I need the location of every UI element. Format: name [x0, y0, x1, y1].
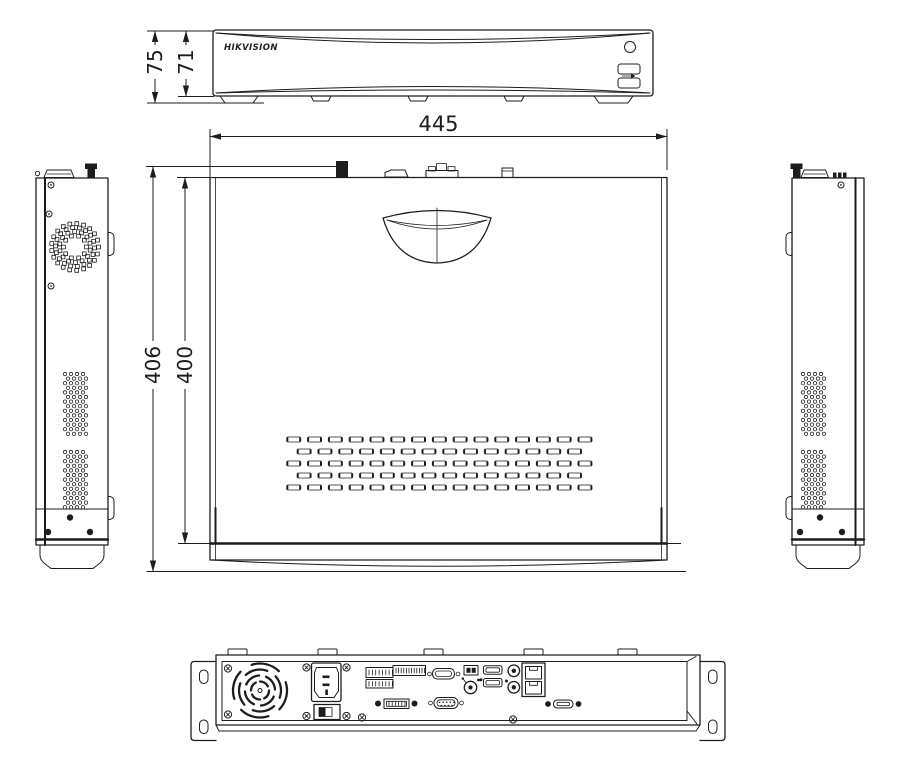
right-side-view: [786, 164, 864, 569]
vent-slot-cap: [310, 450, 312, 454]
db9-pin: [451, 705, 453, 707]
rear-connector-bump: [502, 168, 513, 178]
dimension-406: 406: [139, 341, 165, 389]
panel-rivet: [480, 678, 483, 681]
switch-rocker-on: [319, 708, 326, 717]
ac-pin: [323, 684, 330, 687]
terminal-screw: [576, 701, 582, 707]
vent-slot-cap: [484, 474, 486, 478]
vent-slot-cap: [570, 486, 572, 490]
vent-slot-cap: [507, 462, 509, 466]
vent-slot-cap: [359, 474, 361, 478]
top-view: [210, 161, 667, 566]
vent-slot-cap: [549, 438, 551, 442]
vent-slot-cap: [422, 474, 424, 478]
vent-slot-cap: [546, 450, 548, 454]
vent-slot-cap: [297, 474, 299, 478]
vent-slot-cap: [476, 450, 478, 454]
front-foot: [504, 96, 524, 101]
vent-slot-cap: [382, 462, 384, 466]
dimension-400: 400: [171, 341, 197, 389]
screw-icon: [45, 529, 51, 535]
vent-slot-cap: [403, 462, 405, 466]
vent-slot-cap: [372, 450, 374, 454]
vent-slot-cap: [494, 438, 496, 442]
vent-slot-cap: [424, 486, 426, 490]
vent-slot-cap: [580, 474, 582, 478]
vent-slot-cap: [453, 462, 455, 466]
vent-slot-cap: [466, 462, 468, 466]
vent-slot-cap: [341, 438, 343, 442]
vent-slot-cap: [411, 462, 413, 466]
vent-slot-cap: [474, 462, 476, 466]
vent-slot-cap: [320, 438, 322, 442]
vent-slot-cap: [349, 438, 351, 442]
front-view: HIKVISION: [213, 30, 653, 103]
vent-slot-cap: [528, 462, 530, 466]
vent-slot-cap: [505, 474, 507, 478]
vent-slot-cap: [390, 462, 392, 466]
vent-slot-cap: [330, 450, 332, 454]
vent-slot-cap: [372, 474, 374, 478]
dimension-406-label: 406: [141, 346, 165, 384]
terminal-screw: [412, 701, 418, 707]
vent-slot-cap: [299, 486, 301, 490]
ear-slot: [200, 720, 209, 734]
vent-slot-cap: [286, 462, 288, 466]
vent-slot-cap: [318, 474, 320, 478]
vent-slot-cap: [578, 462, 580, 466]
vent-slot-cap: [320, 462, 322, 466]
vent-slot-cap: [590, 462, 592, 466]
vent-slot-cap: [445, 462, 447, 466]
vent-slot-cap: [320, 486, 322, 490]
vent-slot-cap: [411, 438, 413, 442]
right-side-outline: [792, 178, 864, 545]
top-connector: [35, 171, 39, 175]
vent-slot-cap: [432, 462, 434, 466]
rca-pin: [512, 685, 516, 689]
top-connector: [843, 173, 847, 178]
front-foot-profile: [796, 545, 860, 569]
vent-slot-cap: [390, 486, 392, 490]
front-foot: [311, 96, 331, 101]
vent-slot-cap: [507, 486, 509, 490]
vent-slot-cap: [515, 462, 517, 466]
vent-slot-cap: [434, 474, 436, 478]
vent-slot-cap: [515, 486, 517, 490]
db9-pin: [446, 702, 448, 704]
vent-slot-cap: [463, 474, 465, 478]
bnc-lug: [462, 677, 464, 679]
vent-slot-cap: [536, 486, 538, 490]
vent-slot-cap: [590, 486, 592, 490]
vent-slot-cap: [505, 450, 507, 454]
vent-slot-cap: [403, 486, 405, 490]
vent-slot-cap: [518, 450, 520, 454]
screw-icon: [797, 529, 803, 535]
vent-slot-cap: [310, 474, 312, 478]
vent-slot-cap: [518, 474, 520, 478]
vent-slot-cap: [338, 474, 340, 478]
drawing-canvas: 75 71 HIKVISION 445: [0, 0, 900, 771]
vent-slot-cap: [570, 438, 572, 442]
vent-slot-cap: [515, 438, 517, 442]
vent-slot-cap: [424, 462, 426, 466]
vent-slot-cap: [442, 474, 444, 478]
vent-slot-cap: [351, 450, 353, 454]
vent-slot-cap: [463, 450, 465, 454]
latch-bump: [108, 233, 114, 256]
vent-slot-cap: [362, 438, 364, 442]
vent-slot-cap: [578, 486, 580, 490]
dimension-71: 71: [172, 45, 198, 79]
chassis-tab: [424, 649, 443, 655]
vent-slot-cap: [486, 462, 488, 466]
rear-view: [191, 649, 725, 741]
terminal-screw: [545, 701, 551, 707]
terminal-screw: [375, 701, 381, 707]
vent-slot-cap: [393, 450, 395, 454]
vent-slot-cap: [370, 486, 372, 490]
chassis-tab: [618, 649, 637, 655]
vent-slot-cap: [484, 450, 486, 454]
vent-slot-cap: [442, 450, 444, 454]
vent-slot-cap: [341, 462, 343, 466]
top-view-outline: [210, 178, 667, 561]
vent-slot-cap: [328, 486, 330, 490]
dimension-71-label: 71: [174, 49, 198, 74]
vent-slot-cap: [474, 486, 476, 490]
db9-pin: [441, 705, 443, 707]
front-face-curve: [211, 560, 666, 566]
bnc-pin: [468, 685, 472, 689]
vent-slot-cap: [538, 474, 540, 478]
vent-slot-cap: [362, 486, 364, 490]
vent-slot-cap: [307, 438, 309, 442]
chassis-bottom-lip: [216, 725, 700, 731]
db9-pin: [442, 702, 444, 704]
rear-chassis-outline: [216, 655, 700, 725]
antenna-nub: [88, 169, 96, 178]
rear-antenna-connector: [336, 161, 348, 178]
antenna-nub: [85, 164, 97, 170]
ac-pin: [323, 676, 330, 679]
screw-icon: [817, 514, 823, 520]
dimension-445-label: 445: [418, 112, 458, 136]
vent-slot-cap: [424, 438, 426, 442]
hikvision-logo: HIKVISION: [224, 43, 278, 53]
vent-slot-cap: [557, 438, 559, 442]
vent-slot-cap: [528, 486, 530, 490]
vent-slot-cap: [578, 438, 580, 442]
vent-slot-cap: [486, 438, 488, 442]
vent-slot-cap: [286, 486, 288, 490]
vent-slot-cap: [299, 462, 301, 466]
vent-slot-cap: [432, 486, 434, 490]
vent-slot-cap: [403, 438, 405, 442]
vent-slot-cap: [567, 474, 569, 478]
vent-slot-cap: [359, 450, 361, 454]
db9-pin: [444, 705, 446, 707]
dimension-drawing-page: 75 71 HIKVISION 445: [0, 0, 900, 771]
ac-pin: [325, 690, 328, 696]
vent-slot-cap: [494, 462, 496, 466]
vent-slot-cap: [393, 474, 395, 478]
vent-slot-cap: [307, 486, 309, 490]
vent-slot-cap: [528, 438, 530, 442]
front-foot-profile: [40, 545, 104, 569]
vent-slot-cap: [486, 486, 488, 490]
vent-slot-cap: [590, 438, 592, 442]
vent-slot-cap: [445, 438, 447, 442]
rear-connector-bump: [385, 170, 408, 177]
db9-pin: [453, 702, 455, 704]
vent-slot-cap: [351, 474, 353, 478]
front-foot: [220, 96, 258, 103]
vent-slot-cap: [549, 486, 551, 490]
ear-slot: [200, 670, 209, 684]
vent-slot-cap: [328, 462, 330, 466]
vent-slot-cap: [297, 450, 299, 454]
vent-slot-cap: [559, 474, 561, 478]
rear-connector-bump: [426, 171, 458, 178]
vent-slot-cap: [382, 438, 384, 442]
vent-slot-cap: [476, 474, 478, 478]
latch-bump: [108, 497, 114, 520]
vent-slot-cap: [318, 450, 320, 454]
vent-slot-cap: [557, 486, 559, 490]
vent-slot-cap: [434, 450, 436, 454]
vent-slot-cap: [497, 450, 499, 454]
chassis-tab: [318, 649, 337, 655]
vent-slot-cap: [299, 438, 301, 442]
usb-contact: [472, 668, 476, 673]
vent-slot-cap: [414, 474, 416, 478]
vent-slot-cap: [507, 438, 509, 442]
top-connector: [833, 173, 837, 178]
vent-slot-cap: [466, 486, 468, 490]
vent-slot-cap: [497, 474, 499, 478]
vent-slot-cap: [567, 450, 569, 454]
vent-slot-cap: [411, 486, 413, 490]
rear-rail: [210, 167, 347, 178]
dimension-75-label: 75: [143, 49, 167, 74]
vent-slot-cap: [307, 462, 309, 466]
vent-slot-cap: [580, 450, 582, 454]
vent-slot-cap: [401, 450, 403, 454]
vent-slot-cap: [380, 450, 382, 454]
vent-slot-cap: [382, 486, 384, 490]
dimension-400-label: 400: [173, 346, 197, 384]
db9-pin: [439, 702, 441, 704]
vent-slot-cap: [466, 438, 468, 442]
vent-slot-cap: [414, 450, 416, 454]
mounting-ear-right: [700, 662, 725, 741]
vent-slot-cap: [455, 474, 457, 478]
screw-icon: [67, 514, 73, 520]
chassis-tab: [228, 649, 247, 655]
vent-slot-cap: [380, 474, 382, 478]
vent-slot-cap: [445, 486, 447, 490]
vent-slot-cap: [549, 462, 551, 466]
vent-slot-cap: [559, 450, 561, 454]
vent-slot-cap: [453, 438, 455, 442]
usb-contact: [467, 668, 471, 673]
rear-connector-bump: [437, 164, 447, 171]
panel-rivet: [477, 679, 480, 682]
ear-slot: [709, 670, 718, 684]
top-connector: [838, 173, 842, 178]
latch-bump: [786, 497, 792, 520]
vent-slot-cap: [474, 438, 476, 442]
vent-slot-cap: [401, 474, 403, 478]
panel-rivet: [505, 680, 508, 683]
front-foot: [408, 96, 428, 101]
vent-slot-cap: [341, 486, 343, 490]
vent-slot-cap: [526, 450, 528, 454]
db9-pin: [450, 702, 452, 704]
vent-slot-cap: [536, 438, 538, 442]
mounting-ear-left: [191, 662, 216, 741]
vent-slot-cap: [349, 462, 351, 466]
rca-pin: [512, 669, 516, 673]
vent-slot-cap: [370, 462, 372, 466]
ear-slot: [709, 720, 718, 734]
vent-slot-cap: [570, 462, 572, 466]
vent-slot-cap: [538, 450, 540, 454]
vent-slot-cap: [546, 474, 548, 478]
latch-bump: [786, 233, 792, 256]
vent-slot-cap: [328, 438, 330, 442]
vent-slot-cap: [453, 486, 455, 490]
db9-pin: [448, 705, 450, 707]
front-foot: [594, 96, 633, 103]
vent-slot-cap: [432, 438, 434, 442]
vent-slot-cap: [422, 450, 424, 454]
vent-slot-cap: [536, 462, 538, 466]
chassis-tab: [524, 649, 543, 655]
antenna-nub: [791, 164, 803, 170]
screw-icon: [87, 529, 93, 535]
vent-slot-cap: [370, 438, 372, 442]
antenna-nub: [793, 169, 801, 178]
vent-slot-cap: [362, 462, 364, 466]
vent-slot-cap: [455, 450, 457, 454]
vent-slot-cap: [286, 438, 288, 442]
left-side-view: [35, 164, 114, 569]
vent-slot-cap: [526, 474, 528, 478]
vent-slot-cap: [349, 486, 351, 490]
screw-icon: [839, 529, 845, 535]
vent-slot-cap: [390, 438, 392, 442]
dimension-75: 75: [141, 45, 167, 79]
vent-slot-cap: [338, 450, 340, 454]
vent-slot-cap: [557, 462, 559, 466]
vent-slot-cap: [494, 486, 496, 490]
vent-slot-cap: [330, 474, 332, 478]
